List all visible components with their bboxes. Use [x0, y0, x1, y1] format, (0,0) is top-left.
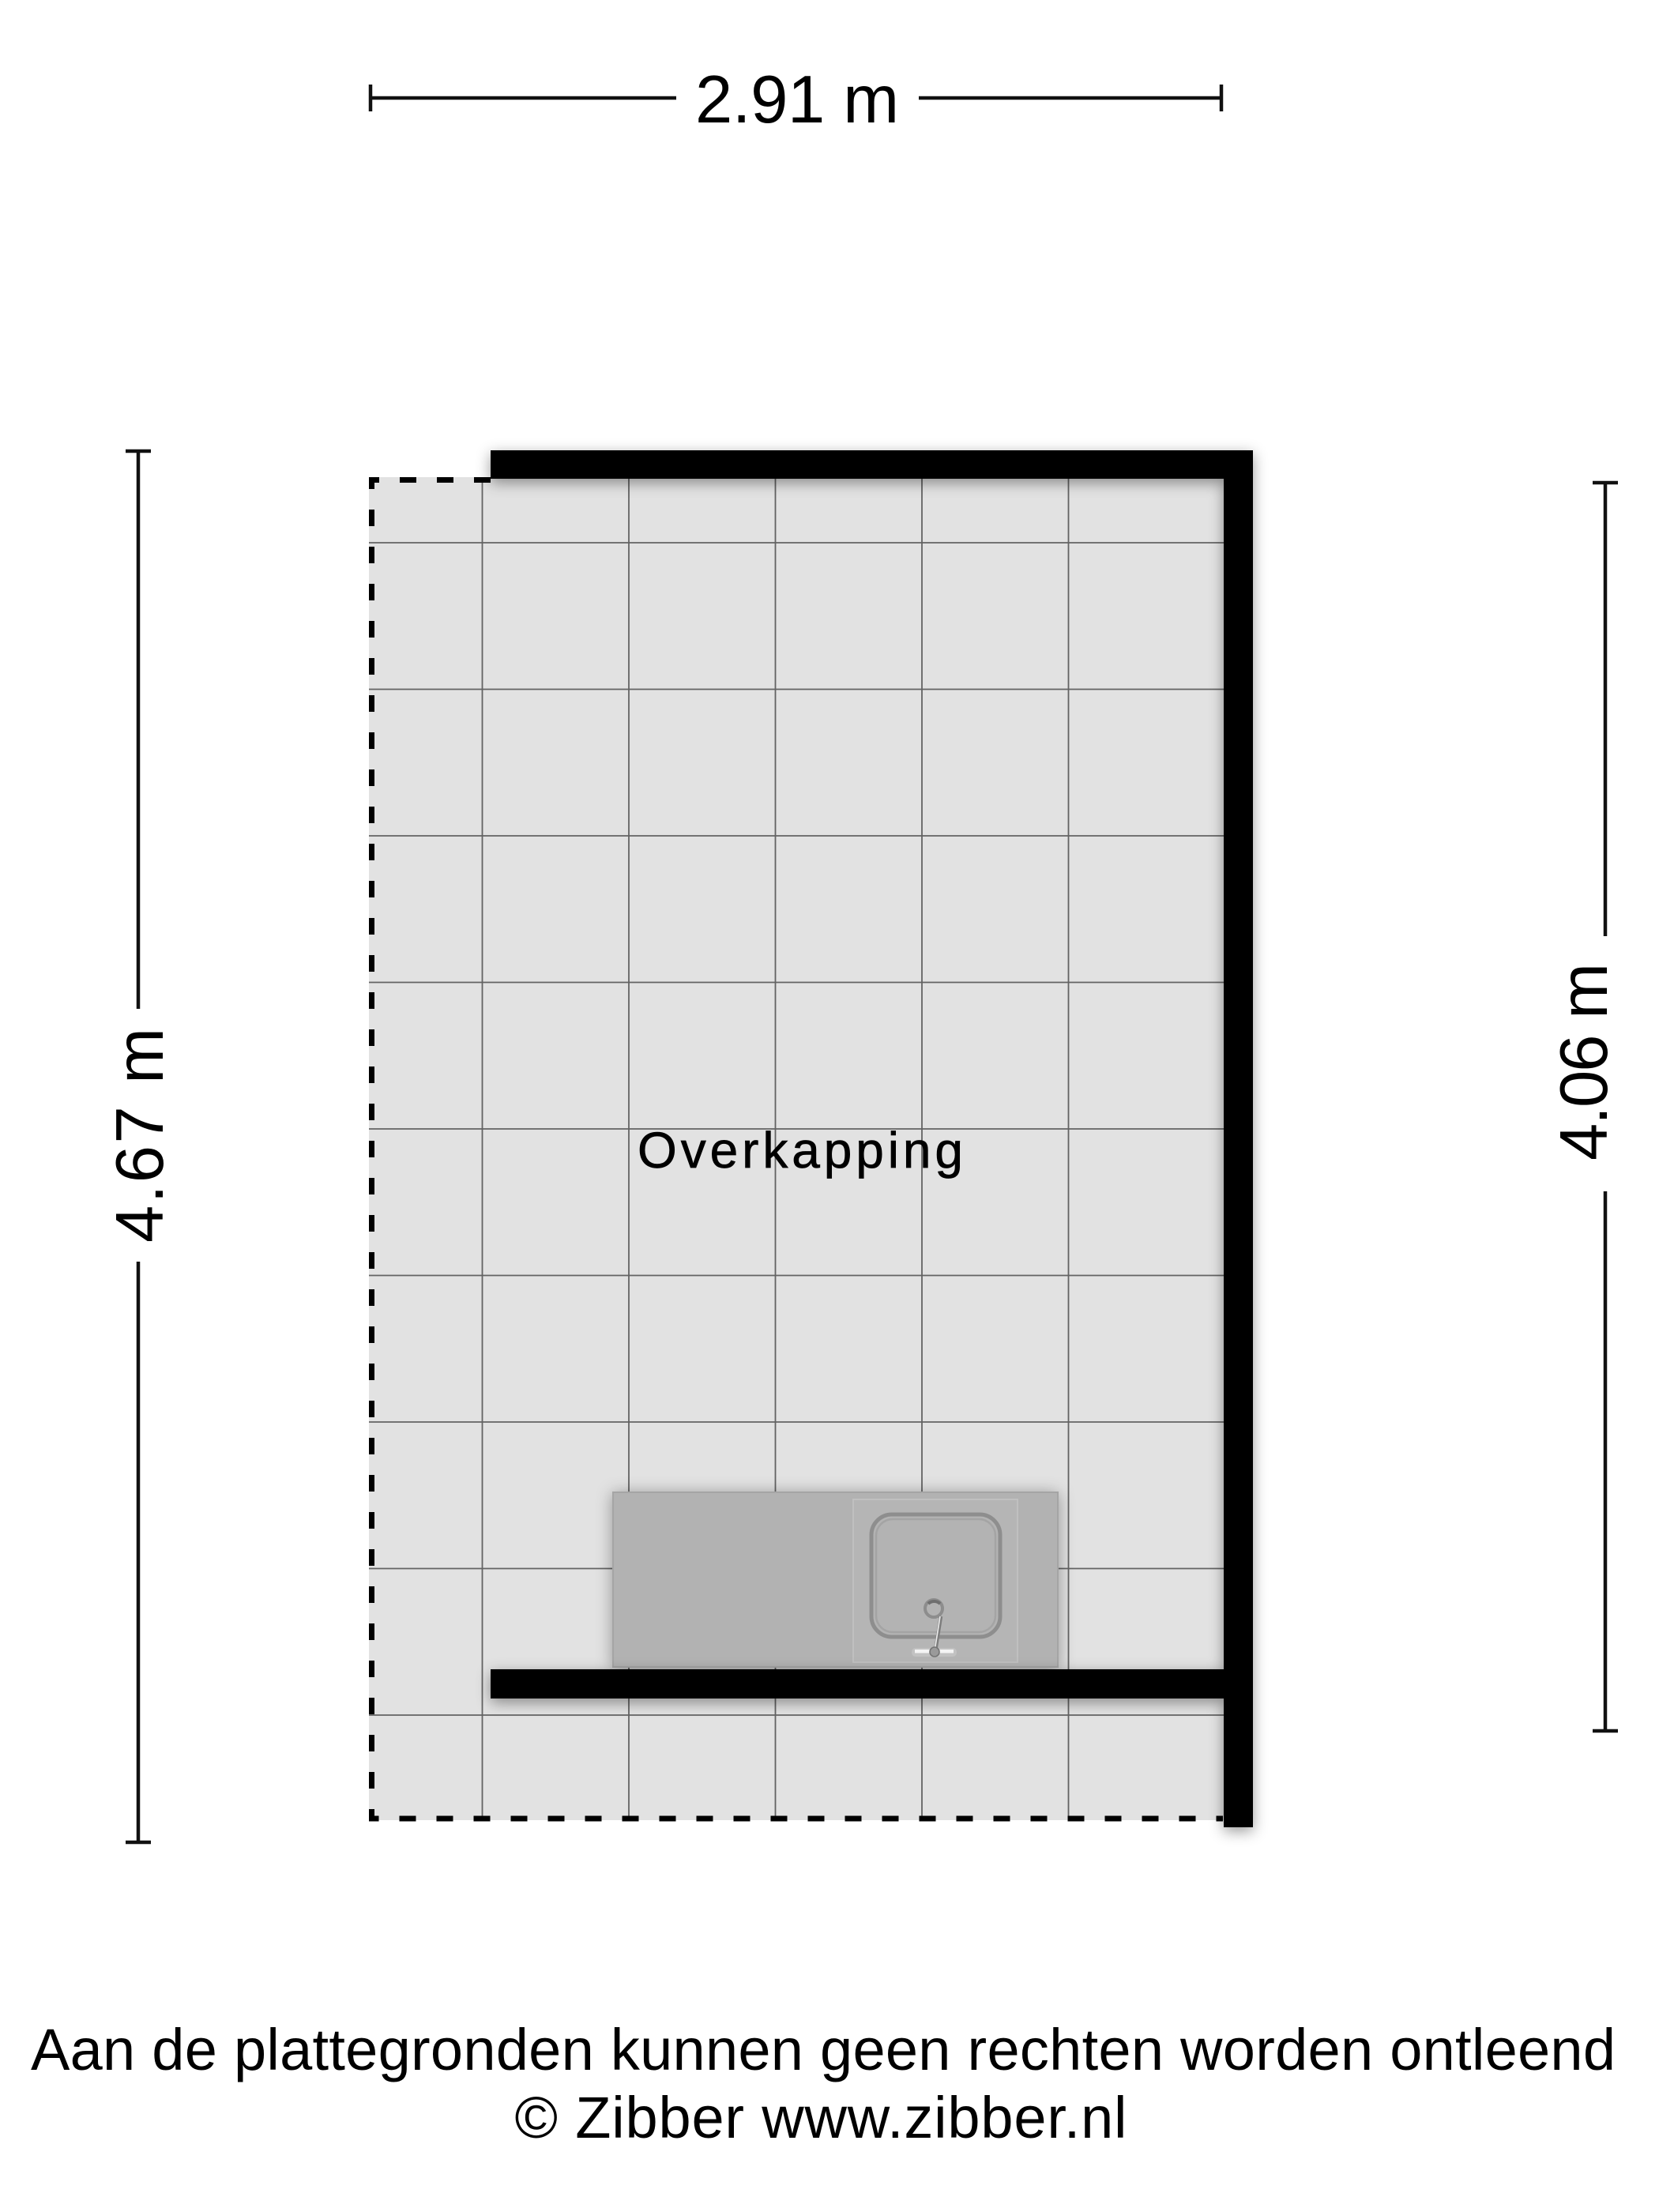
svg-text:© Zibber www.zibber.nl: © Zibber www.zibber.nl [515, 2085, 1127, 2150]
svg-text:2.91 m: 2.91 m [695, 62, 899, 137]
svg-text:4.06 m: 4.06 m [1547, 963, 1622, 1161]
svg-text:Overkapping: Overkapping [638, 1122, 963, 1179]
svg-text:Aan de plattegronden kunnen ge: Aan de plattegronden kunnen geen rechten… [31, 2017, 1616, 2082]
svg-text:4.67 m: 4.67 m [103, 1028, 178, 1243]
